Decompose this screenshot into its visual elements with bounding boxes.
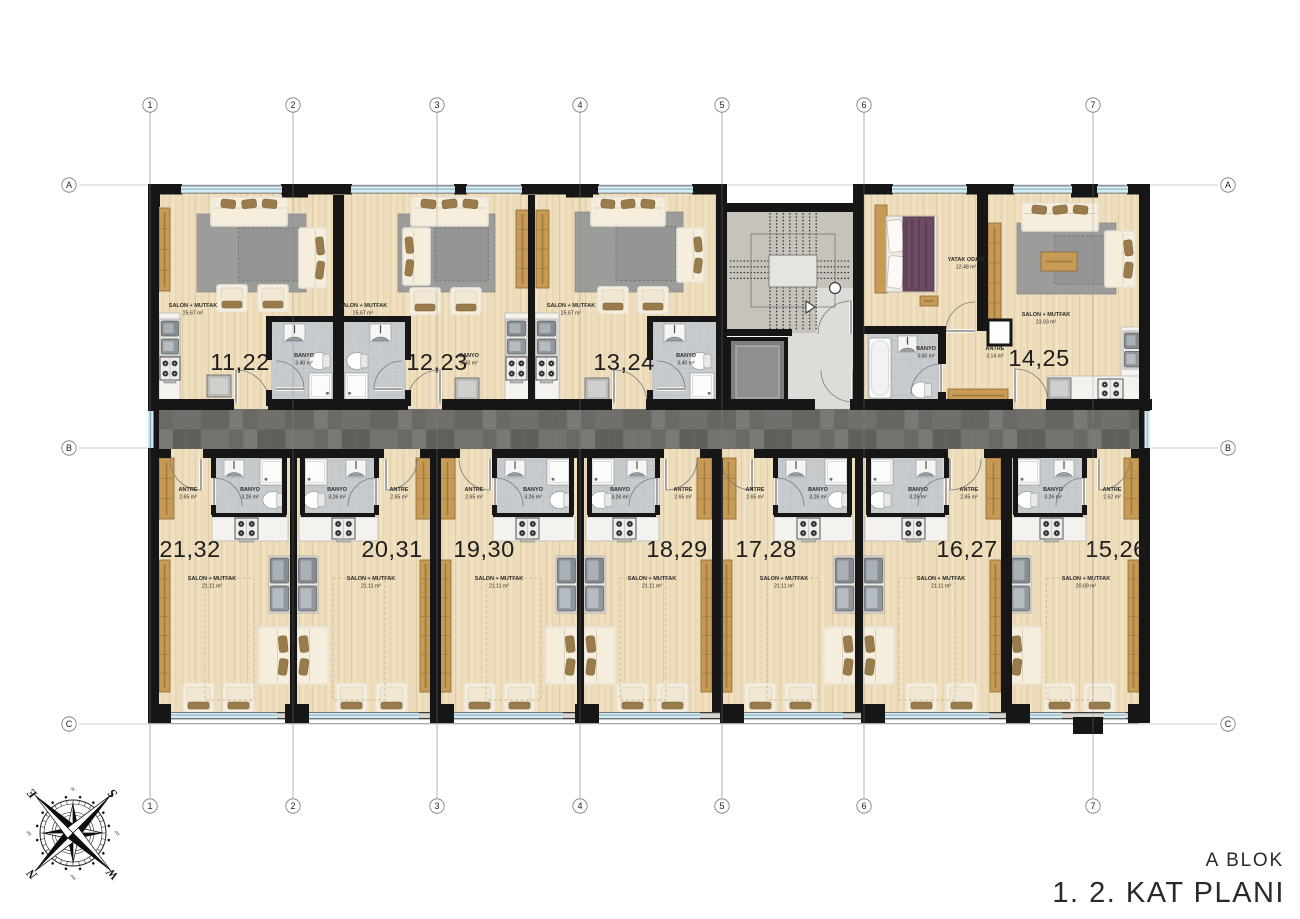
svg-text:3.40 m²: 3.40 m² bbox=[295, 361, 313, 367]
svg-text:25.67 m²: 25.67 m² bbox=[183, 311, 204, 317]
svg-text:ANTRE: ANTRE bbox=[746, 487, 765, 493]
svg-text:SALON + MUTFAK: SALON + MUTFAK bbox=[760, 576, 808, 582]
svg-text:17,28: 17,28 bbox=[735, 536, 796, 562]
svg-text:ANTRE: ANTRE bbox=[986, 346, 1005, 352]
svg-text:SALON + MUTFAK: SALON + MUTFAK bbox=[1022, 312, 1070, 318]
svg-text:25.67 m²: 25.67 m² bbox=[353, 311, 374, 317]
svg-text:A: A bbox=[1225, 180, 1231, 190]
svg-text:4: 4 bbox=[577, 100, 582, 110]
svg-text:2: 2 bbox=[290, 100, 295, 110]
svg-text:3: 3 bbox=[434, 100, 439, 110]
svg-text:3.26 m²: 3.26 m² bbox=[524, 495, 542, 501]
svg-text:1. 2. KAT PLANI: 1. 2. KAT PLANI bbox=[1052, 877, 1285, 909]
svg-text:2: 2 bbox=[290, 801, 295, 811]
svg-text:ANTRE: ANTRE bbox=[179, 487, 198, 493]
svg-text:BANYO: BANYO bbox=[240, 487, 261, 493]
svg-text:3.26 m²: 3.26 m² bbox=[1044, 495, 1062, 501]
svg-text:YATAK ODASI: YATAK ODASI bbox=[948, 257, 985, 263]
svg-text:ANTRE: ANTRE bbox=[390, 487, 409, 493]
svg-text:SALON + MUTFAK: SALON + MUTFAK bbox=[347, 576, 395, 582]
svg-text:3.26 m²: 3.26 m² bbox=[611, 495, 629, 501]
svg-text:B: B bbox=[66, 443, 72, 453]
svg-text:B: B bbox=[1225, 443, 1231, 453]
svg-text:2.65 m²: 2.65 m² bbox=[746, 495, 764, 501]
svg-text:7: 7 bbox=[1090, 801, 1095, 811]
svg-text:C: C bbox=[66, 719, 73, 729]
svg-text:BANYO: BANYO bbox=[294, 353, 315, 359]
svg-text:11,22: 11,22 bbox=[210, 349, 270, 375]
svg-text:2.52 m²: 2.52 m² bbox=[1103, 495, 1121, 501]
svg-text:3.60 m²: 3.60 m² bbox=[917, 354, 935, 360]
svg-text:A BLOK: A BLOK bbox=[1206, 850, 1284, 871]
svg-text:A: A bbox=[66, 180, 72, 190]
svg-text:BANYO: BANYO bbox=[808, 487, 829, 493]
svg-text:ANTRE: ANTRE bbox=[960, 487, 979, 493]
svg-text:SALON + MUTFAK: SALON + MUTFAK bbox=[1062, 576, 1110, 582]
svg-text:2.65 m²: 2.65 m² bbox=[674, 495, 692, 501]
svg-text:3.26 m²: 3.26 m² bbox=[909, 495, 927, 501]
svg-text:2.65 m²: 2.65 m² bbox=[465, 495, 483, 501]
svg-text:BANYO: BANYO bbox=[610, 487, 631, 493]
svg-text:6: 6 bbox=[861, 801, 866, 811]
svg-text:20.69 m²: 20.69 m² bbox=[1076, 584, 1097, 590]
svg-text:6: 6 bbox=[861, 100, 866, 110]
svg-text:21.11 m²: 21.11 m² bbox=[774, 584, 794, 590]
svg-text:19,30: 19,30 bbox=[453, 536, 514, 562]
svg-text:7: 7 bbox=[1090, 100, 1095, 110]
svg-text:13,24: 13,24 bbox=[593, 349, 654, 375]
svg-text:SALON + MUTFAK: SALON + MUTFAK bbox=[628, 576, 676, 582]
svg-text:1: 1 bbox=[147, 801, 152, 811]
svg-text:21.11 m²: 21.11 m² bbox=[931, 584, 951, 590]
svg-text:5: 5 bbox=[719, 801, 724, 811]
svg-text:ANTRE: ANTRE bbox=[465, 487, 484, 493]
svg-text:3.14 m²: 3.14 m² bbox=[986, 354, 1004, 360]
svg-text:BANYO: BANYO bbox=[916, 346, 937, 352]
svg-text:21.11 m²: 21.11 m² bbox=[202, 584, 222, 590]
svg-text:SALON + MUTFAK: SALON + MUTFAK bbox=[917, 576, 965, 582]
svg-text:5: 5 bbox=[719, 100, 724, 110]
svg-text:15,26: 15,26 bbox=[1085, 536, 1146, 562]
svg-text:21.11 m²: 21.11 m² bbox=[489, 584, 509, 590]
svg-text:18,29: 18,29 bbox=[646, 536, 707, 562]
svg-text:3: 3 bbox=[434, 801, 439, 811]
svg-text:2.65 m²: 2.65 m² bbox=[960, 495, 978, 501]
svg-text:3.26 m²: 3.26 m² bbox=[809, 495, 827, 501]
svg-text:3.26 m²: 3.26 m² bbox=[328, 495, 346, 501]
svg-text:ANTRE: ANTRE bbox=[1103, 487, 1122, 493]
svg-text:23.93 m²: 23.93 m² bbox=[1036, 320, 1057, 326]
svg-text:C: C bbox=[1225, 719, 1232, 729]
svg-text:21.11 m²: 21.11 m² bbox=[642, 584, 662, 590]
svg-text:12.48 m²: 12.48 m² bbox=[956, 265, 977, 271]
svg-text:14,25: 14,25 bbox=[1008, 345, 1069, 371]
svg-text:3.26 m²: 3.26 m² bbox=[241, 495, 259, 501]
svg-text:21,32: 21,32 bbox=[159, 536, 220, 562]
svg-text:20,31: 20,31 bbox=[361, 536, 422, 562]
svg-text:SALON + MUTFAK: SALON + MUTFAK bbox=[547, 303, 595, 309]
svg-text:4: 4 bbox=[577, 801, 582, 811]
svg-text:1: 1 bbox=[147, 100, 152, 110]
svg-text:SALON + MUTFAK: SALON + MUTFAK bbox=[475, 576, 523, 582]
svg-text:3.40 m²: 3.40 m² bbox=[677, 361, 695, 367]
svg-text:2.65 m²: 2.65 m² bbox=[179, 495, 197, 501]
svg-text:BANYO: BANYO bbox=[523, 487, 544, 493]
svg-text:SALON + MUTFAK: SALON + MUTFAK bbox=[169, 303, 217, 309]
svg-text:ANTRE: ANTRE bbox=[674, 487, 693, 493]
svg-text:BANYO: BANYO bbox=[908, 487, 929, 493]
svg-text:2.65 m²: 2.65 m² bbox=[390, 495, 408, 501]
svg-text:BANYO: BANYO bbox=[676, 353, 697, 359]
svg-text:25.67 m²: 25.67 m² bbox=[561, 311, 582, 317]
svg-text:BANYO: BANYO bbox=[327, 487, 348, 493]
svg-text:BANYO: BANYO bbox=[1043, 487, 1064, 493]
svg-text:SALON + MUTFAK: SALON + MUTFAK bbox=[188, 576, 236, 582]
svg-text:SALON + MUTFAK: SALON + MUTFAK bbox=[339, 303, 387, 309]
svg-text:16,27: 16,27 bbox=[936, 536, 997, 562]
svg-text:21.11 m²: 21.11 m² bbox=[361, 584, 381, 590]
